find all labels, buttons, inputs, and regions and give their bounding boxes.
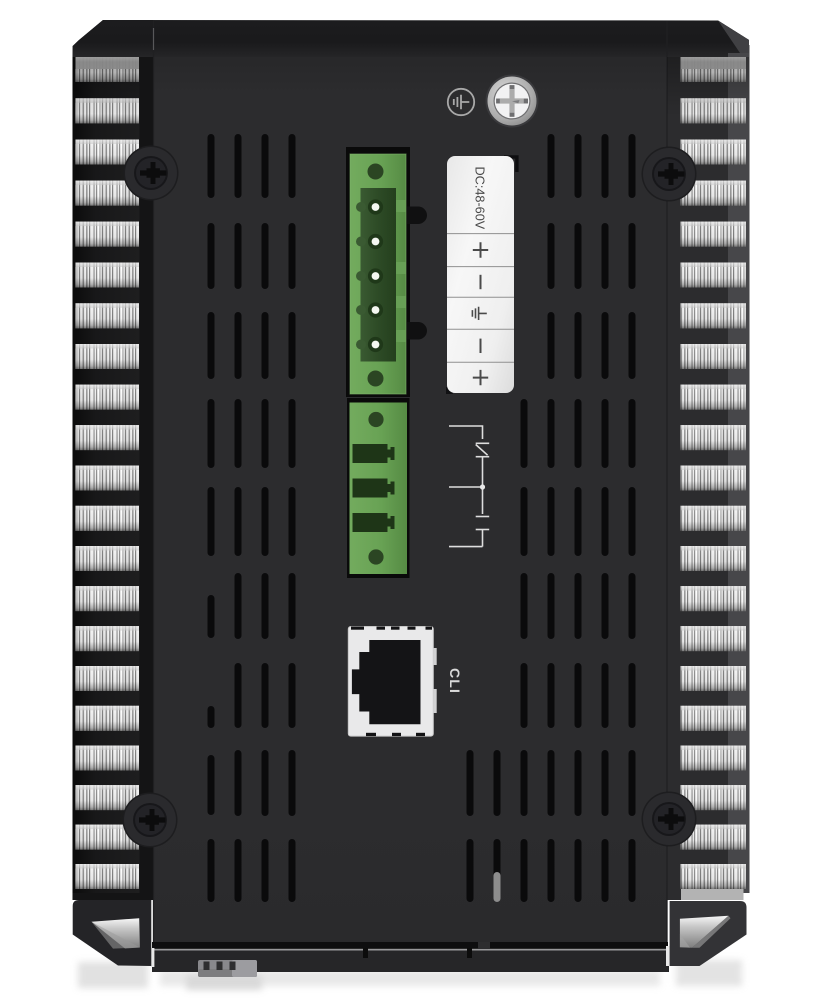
svg-text:CLI: CLI — [447, 668, 463, 694]
svg-text:DC:48-60V: DC:48-60V — [473, 167, 487, 230]
